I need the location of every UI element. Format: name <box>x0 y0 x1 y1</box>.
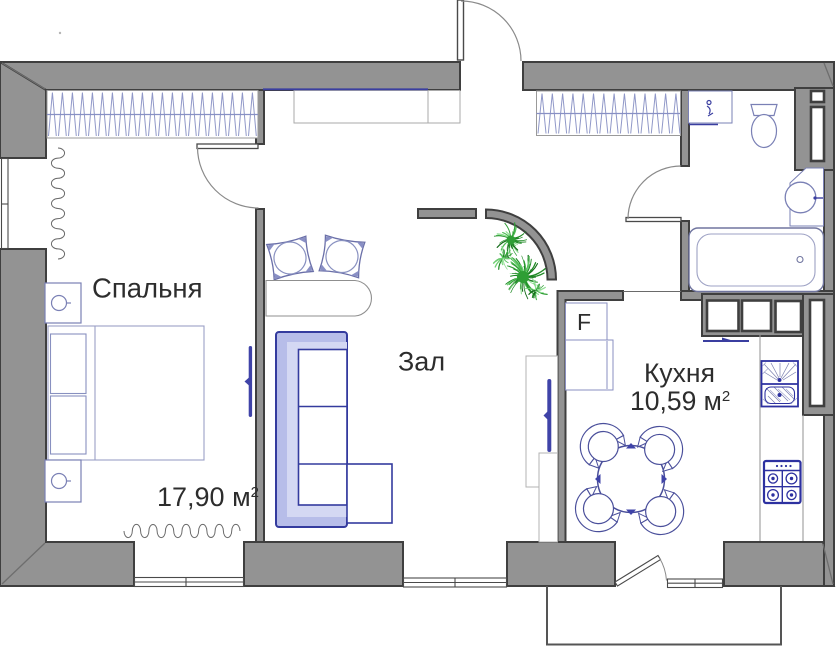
svg-text:Зал: Зал <box>398 347 445 377</box>
svg-text:F: F <box>577 309 591 335</box>
svg-text:17,90 м2: 17,90 м2 <box>157 482 259 512</box>
svg-text:10,59 м2: 10,59 м2 <box>630 386 730 416</box>
svg-text:Спальня: Спальня <box>92 273 203 304</box>
svg-text:Кухня: Кухня <box>644 358 715 388</box>
